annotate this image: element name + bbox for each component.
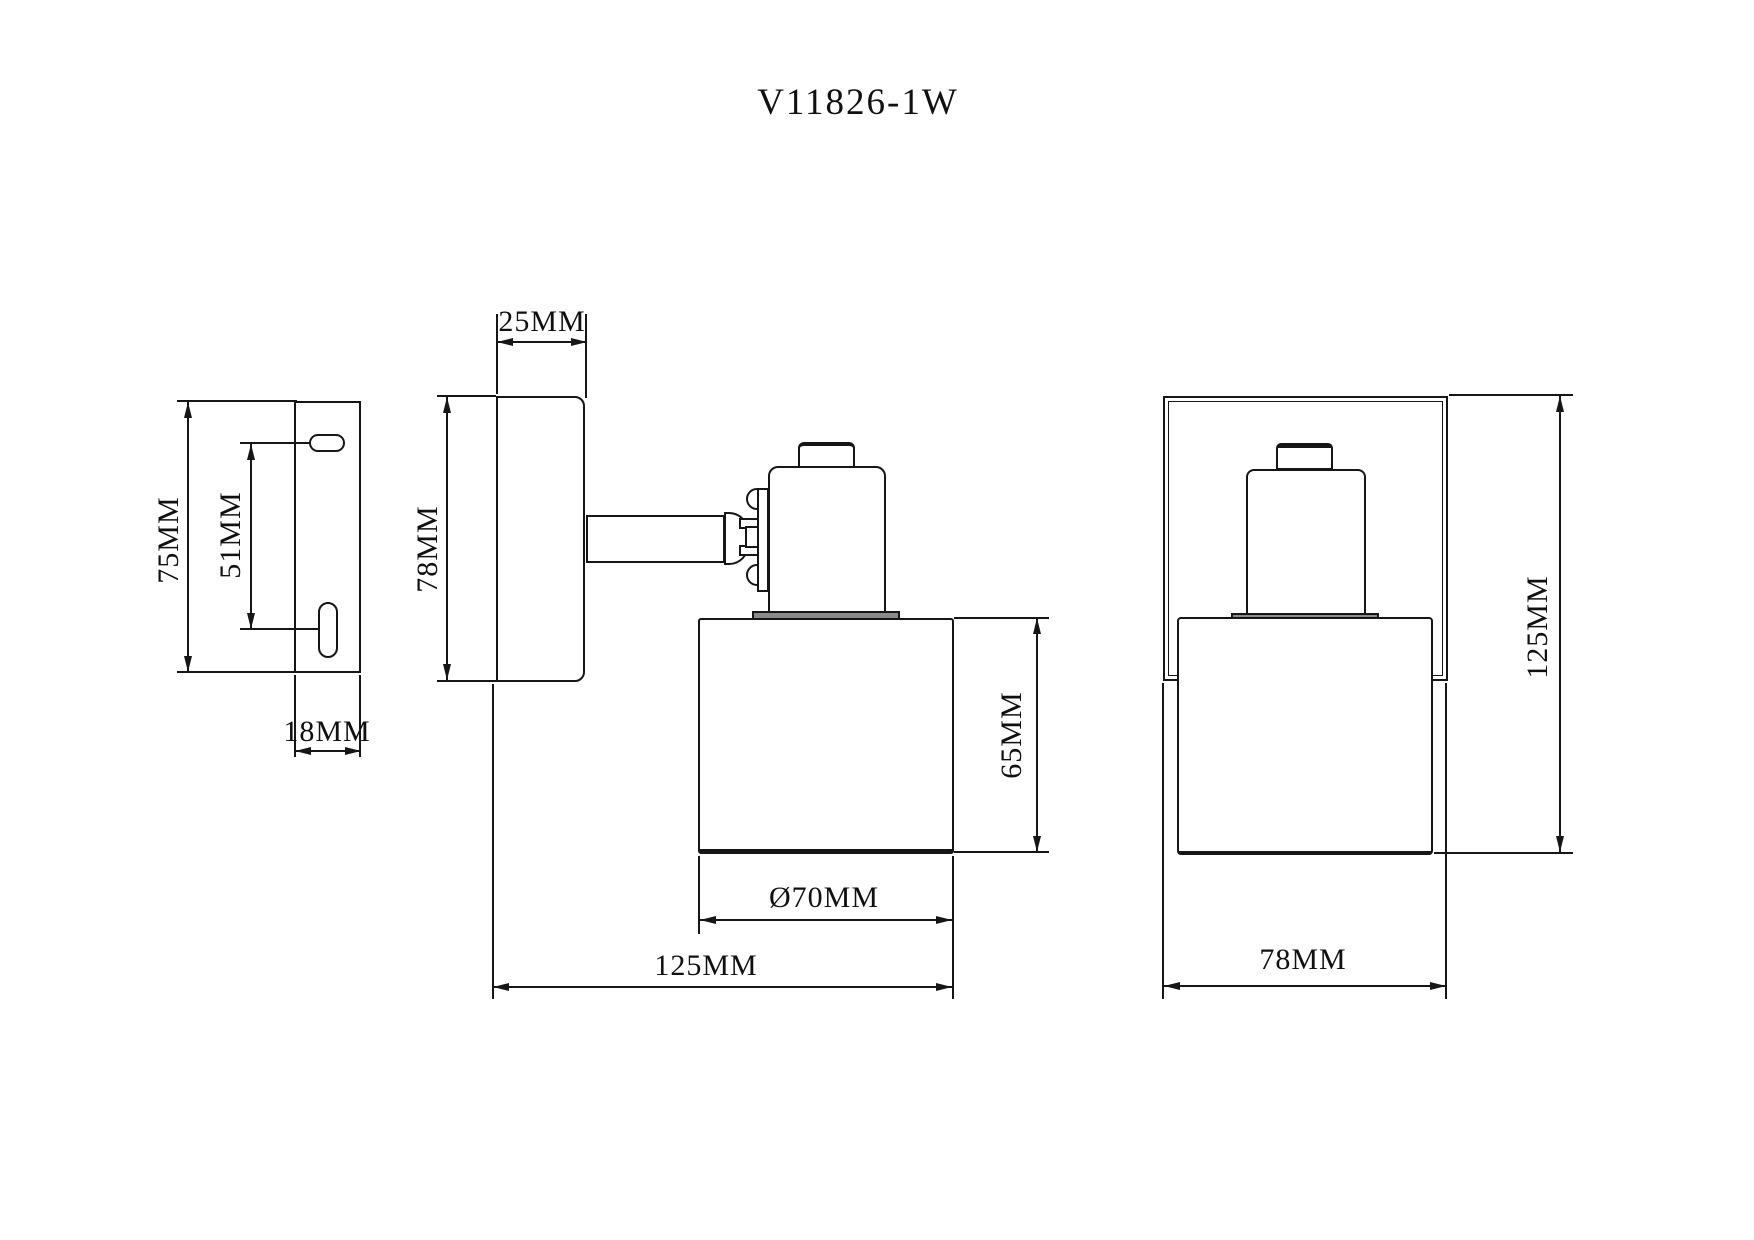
dim-line-51mm	[250, 444, 252, 629]
ext-line-75mm-bottom	[177, 671, 297, 673]
arrowhead-up	[247, 444, 255, 460]
bracket-slot-top	[309, 434, 345, 452]
arrowhead-down	[443, 664, 451, 680]
wall-canopy-side	[496, 396, 585, 682]
swivel-arm	[586, 515, 725, 563]
shade-side	[698, 618, 954, 854]
arrowhead-down	[184, 656, 192, 672]
ext-line-shared-right	[952, 856, 954, 999]
dim-line-78mm	[446, 397, 448, 680]
dim-label-slot-spacing: 51MM	[214, 475, 248, 595]
dim-label-bracket-height: 75MM	[152, 480, 186, 600]
dim-line-70mm	[700, 919, 952, 921]
arrowhead-up	[1556, 396, 1564, 412]
ext-line-125mm-front-bottom	[1434, 852, 1573, 854]
dim-line-125mm-front	[1559, 396, 1561, 852]
arrowhead-down	[247, 613, 255, 629]
arrowhead-right	[1430, 982, 1446, 990]
ext-line-75mm-top	[177, 400, 297, 402]
ext-line-78mm-front-left	[1162, 683, 1164, 999]
drawing-title: V11826-1W	[658, 83, 1058, 123]
dim-label-canopy-depth: 25MM	[462, 305, 622, 339]
lamp-head-front	[1246, 469, 1366, 616]
ext-line-125mm-front-top	[1449, 394, 1573, 396]
arrowhead-up	[1033, 618, 1041, 634]
technical-drawing-canvas: V11826-1W 75MM 51MM 18MM 25MM 78MM	[0, 0, 1754, 1240]
dim-label-overall-depth: 125MM	[626, 949, 786, 983]
ext-line-78mm-bottom	[437, 680, 497, 682]
ext-line-125mm-left	[492, 684, 494, 999]
socket-knob-front	[1276, 443, 1333, 470]
arrowhead-left	[497, 338, 513, 346]
arrowhead-up	[184, 402, 192, 418]
dim-label-overall-height: 125MM	[1521, 567, 1555, 687]
arrowhead-right	[571, 338, 587, 346]
dim-label-shade-diameter: Ø70MM	[744, 881, 904, 915]
dim-line-75mm	[187, 402, 189, 672]
dim-label-canopy-height: 78MM	[411, 489, 445, 609]
arrowhead-right	[936, 983, 952, 991]
arrowhead-down	[1556, 836, 1564, 852]
lamp-head-side	[768, 466, 886, 613]
arrowhead-left	[1164, 982, 1180, 990]
arrowhead-left	[493, 983, 509, 991]
dim-label-canopy-width: 78MM	[1223, 943, 1383, 977]
bracket-slot-bottom	[318, 602, 338, 658]
socket-knob-side	[798, 442, 855, 468]
dim-label-bracket-depth: 18MM	[247, 715, 407, 749]
arrowhead-up	[443, 397, 451, 413]
arrowhead-down	[1033, 836, 1041, 852]
dim-line-78mm-front	[1164, 985, 1446, 987]
dim-line-125mm	[493, 986, 952, 988]
shade-front	[1177, 617, 1433, 855]
arrowhead-right	[936, 916, 952, 924]
dim-label-shade-height: 65MM	[995, 675, 1029, 795]
dim-line-65mm	[1036, 618, 1038, 852]
ext-line-78mm-front-right	[1445, 683, 1447, 999]
arrowhead-left	[700, 916, 716, 924]
